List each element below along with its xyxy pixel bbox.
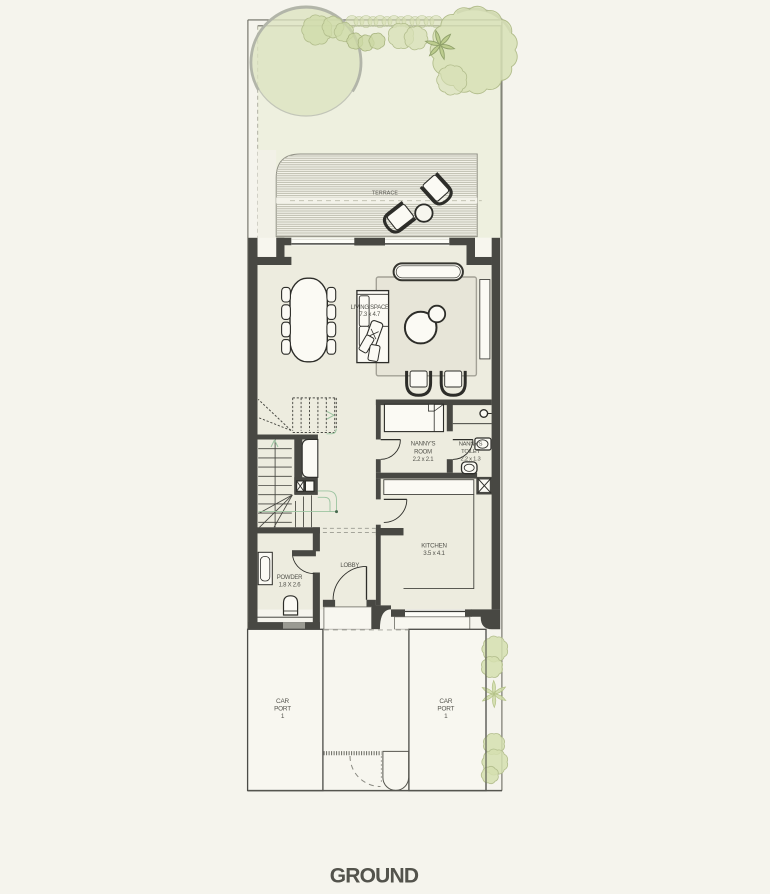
svg-text:2.2 x 2.1: 2.2 x 2.1 bbox=[413, 457, 435, 463]
svg-text:2.2 x 1.3: 2.2 x 1.3 bbox=[461, 457, 481, 463]
svg-text:ROOM: ROOM bbox=[414, 449, 432, 455]
svg-text:3.5 x 4.1: 3.5 x 4.1 bbox=[423, 550, 445, 557]
svg-text:PORT: PORT bbox=[437, 705, 454, 712]
svg-text:PORT: PORT bbox=[274, 705, 291, 712]
svg-text:LIVING SPACE: LIVING SPACE bbox=[351, 305, 389, 311]
svg-text:CAR: CAR bbox=[439, 698, 452, 705]
svg-text:TERRACE: TERRACE bbox=[372, 191, 399, 197]
svg-text:TOILET: TOILET bbox=[461, 449, 480, 455]
svg-text:1.8 X 2.6: 1.8 X 2.6 bbox=[279, 582, 302, 588]
svg-text:7.3 x 4.7: 7.3 x 4.7 bbox=[359, 312, 381, 318]
svg-text:KITCHEN: KITCHEN bbox=[421, 542, 446, 549]
svg-text:NANNY'S: NANNY'S bbox=[411, 442, 436, 448]
svg-text:POWDER: POWDER bbox=[277, 575, 303, 581]
svg-text:LOBBY: LOBBY bbox=[340, 563, 359, 569]
svg-text:NANNY'S: NANNY'S bbox=[459, 442, 483, 448]
svg-text:GROUND: GROUND bbox=[330, 865, 419, 888]
svg-text:CAR: CAR bbox=[276, 698, 289, 705]
